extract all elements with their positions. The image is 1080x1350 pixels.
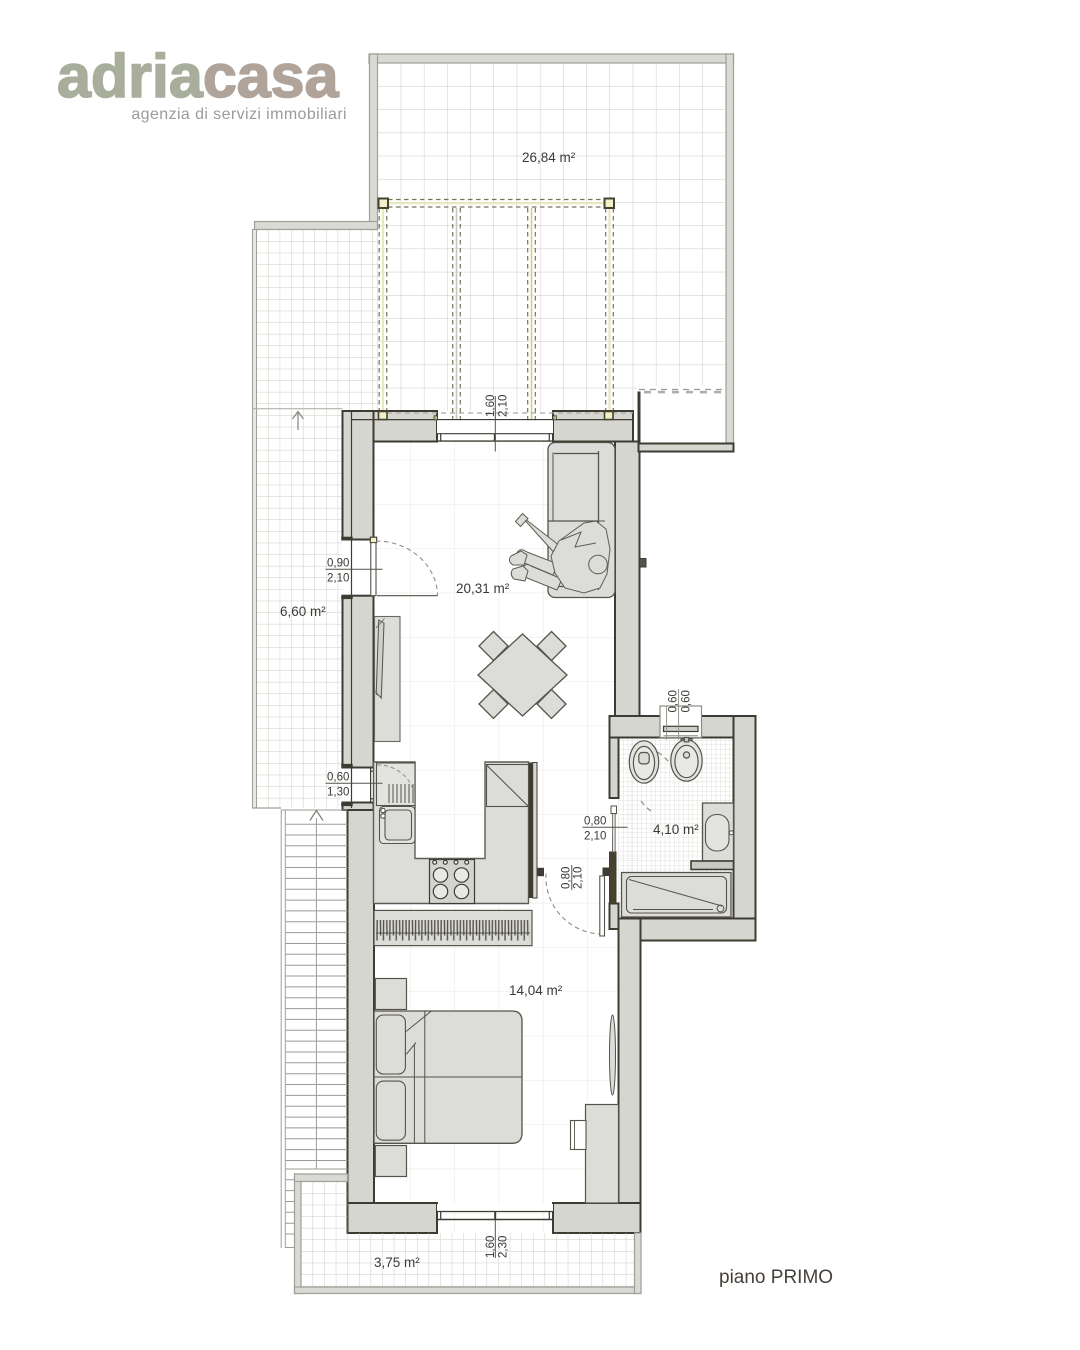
svg-text:2,30: 2,30	[498, 1236, 510, 1258]
svg-text:2,10: 2,10	[327, 573, 349, 585]
svg-text:0,80: 0,80	[561, 867, 573, 889]
svg-text:2,10: 2,10	[573, 867, 585, 889]
svg-text:3,75 m²: 3,75 m²	[374, 1255, 420, 1270]
svg-text:0,90: 0,90	[327, 558, 349, 570]
svg-text:4,10 m²: 4,10 m²	[653, 822, 699, 837]
svg-text:0,60: 0,60	[681, 690, 693, 712]
svg-text:6,60 m²: 6,60 m²	[280, 604, 326, 619]
svg-text:20,31 m²: 20,31 m²	[456, 581, 510, 596]
svg-text:2,10: 2,10	[584, 831, 606, 843]
svg-text:0,80: 0,80	[584, 816, 606, 828]
svg-text:1,30: 1,30	[327, 787, 349, 799]
svg-text:14,04 m²: 14,04 m²	[509, 983, 563, 998]
svg-text:agenzia di servizi immobiliari: agenzia di servizi immobiliari	[131, 106, 347, 123]
svg-text:0,60: 0,60	[327, 772, 349, 784]
svg-text:26,84 m²: 26,84 m²	[522, 150, 576, 165]
svg-text:0,60: 0,60	[668, 690, 680, 712]
svg-text:2,10: 2,10	[498, 395, 510, 417]
svg-text:piano PRIMO: piano PRIMO	[719, 1267, 833, 1288]
svg-text:adriacasa: adriacasa	[57, 42, 340, 110]
